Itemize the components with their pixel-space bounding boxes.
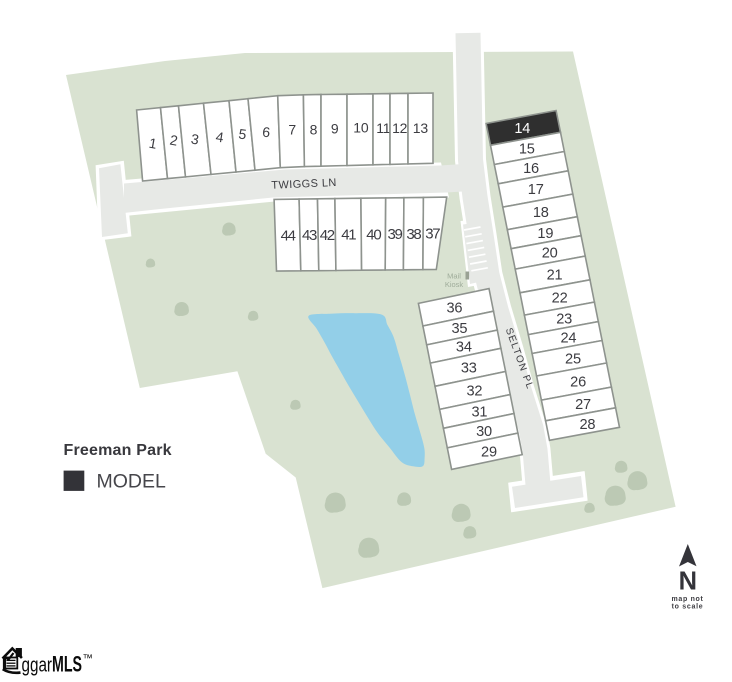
svg-text:38: 38: [406, 226, 421, 243]
svg-text:31: 31: [471, 405, 487, 421]
svg-text:20: 20: [542, 246, 558, 262]
svg-text:43: 43: [302, 227, 317, 244]
svg-text:28: 28: [580, 417, 596, 433]
svg-text:23: 23: [556, 311, 572, 327]
svg-text:41: 41: [341, 227, 356, 244]
svg-text:MODEL: MODEL: [97, 471, 167, 493]
svg-text:44: 44: [281, 227, 296, 244]
svg-text:16: 16: [523, 161, 539, 177]
svg-text:11: 11: [376, 120, 391, 136]
svg-text:21: 21: [547, 268, 563, 284]
svg-text:N: N: [679, 568, 697, 596]
svg-text:22: 22: [552, 291, 568, 307]
svg-text:40: 40: [366, 226, 381, 243]
svg-text:39: 39: [388, 226, 403, 243]
svg-text:27: 27: [575, 397, 591, 413]
svg-text:19: 19: [537, 226, 553, 242]
svg-text:7: 7: [288, 121, 296, 137]
svg-text:MLS: MLS: [52, 651, 82, 676]
svg-text:32: 32: [466, 384, 482, 400]
svg-text:26: 26: [570, 375, 586, 391]
svg-text:42: 42: [320, 227, 335, 244]
svg-text:13: 13: [413, 120, 429, 136]
svg-text:30: 30: [476, 424, 492, 440]
svg-text:ggar: ggar: [22, 654, 53, 676]
svg-text:12: 12: [392, 120, 408, 136]
svg-text:9: 9: [331, 121, 339, 137]
svg-text:™: ™: [83, 653, 94, 665]
svg-text:25: 25: [565, 351, 581, 367]
svg-text:17: 17: [528, 182, 544, 198]
svg-text:10: 10: [353, 120, 369, 136]
svg-text:36: 36: [447, 300, 463, 316]
svg-text:Freeman Park: Freeman Park: [64, 442, 172, 459]
svg-text:Kiosk: Kiosk: [445, 280, 464, 289]
svg-text:29: 29: [481, 444, 497, 460]
svg-text:14: 14: [514, 121, 530, 137]
svg-text:15: 15: [519, 142, 535, 158]
svg-text:33: 33: [461, 360, 477, 376]
svg-text:to scale: to scale: [672, 604, 704, 611]
svg-text:18: 18: [533, 205, 549, 221]
svg-text:37: 37: [425, 226, 440, 243]
svg-text:8: 8: [310, 122, 318, 138]
svg-text:24: 24: [560, 331, 576, 347]
svg-text:34: 34: [456, 340, 472, 356]
svg-text:35: 35: [451, 321, 467, 337]
svg-text:map not: map not: [671, 596, 703, 603]
